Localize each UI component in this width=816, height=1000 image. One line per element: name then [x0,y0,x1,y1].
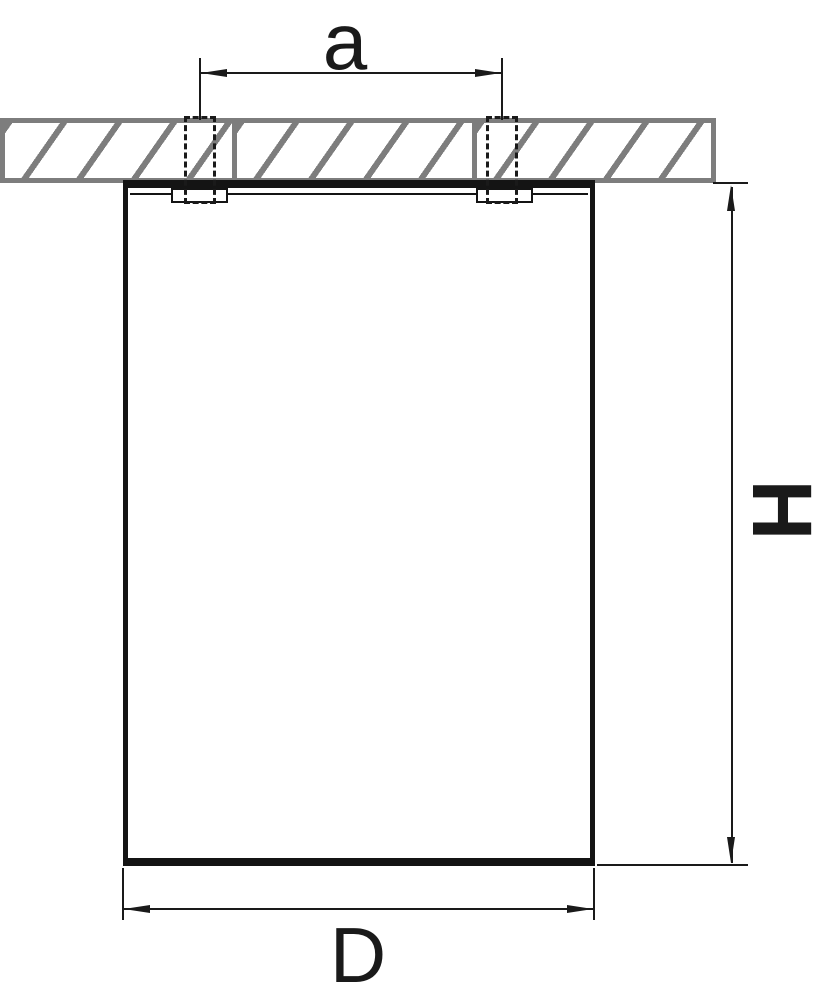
dimension-d-arrow-right [567,905,593,913]
dimension-a-arrow-left [201,69,227,77]
fixture-body [123,180,595,866]
ceiling-hatch-panel-middle [232,118,477,183]
dimension-a-arrow-right [475,69,501,77]
dimension-h-arrow-bottom [727,837,735,863]
dimension-d-line [123,908,594,910]
dimension-a-extension-left [199,58,201,120]
dimension-h-line [731,187,733,863]
technical-drawing: a H D [0,0,816,1000]
mounting-hole-left [184,116,216,204]
dimension-d-arrow-left [124,905,150,913]
dimension-a-extension-right [501,58,503,120]
dimension-label-d: D [313,916,403,994]
dimension-h-extension-bottom [597,864,748,866]
mounting-hole-right [486,116,518,204]
dimension-label-a: a [300,2,390,82]
dimension-label-h: H [739,472,816,548]
dimension-h-arrow-top [727,185,735,211]
dimension-h-extension-top [713,182,748,184]
dimension-d-extension-right [593,868,595,920]
ceiling-section [0,118,716,183]
